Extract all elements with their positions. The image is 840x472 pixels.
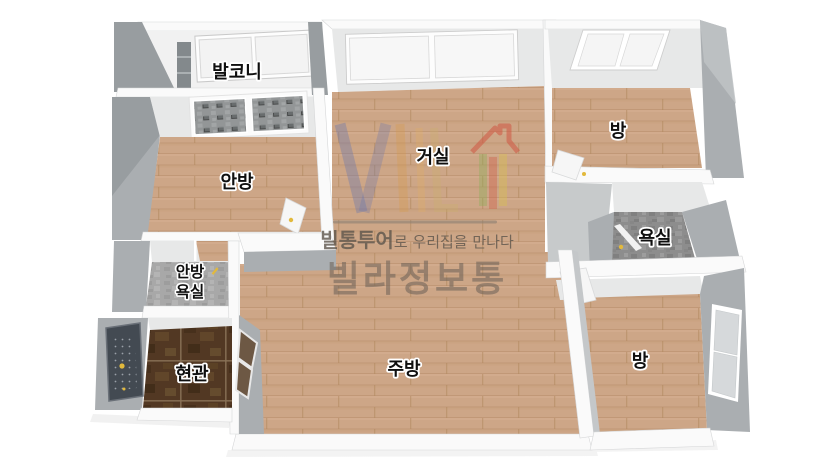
living-window — [345, 30, 518, 84]
balcony-back-wall-top — [138, 22, 322, 31]
label-room-top: 방 — [610, 121, 627, 142]
entrance-door-pattern — [112, 333, 137, 391]
master-bath-bottom-wall-top — [142, 306, 232, 318]
room-master-bedroom — [112, 91, 322, 241]
floorplan-canvas: 빌통투어로 우리집을 만나다 빌라정보통 발코니 안방 거실 방 욕실 안방 욕… — [0, 0, 840, 472]
logo-i-stroke — [400, 124, 404, 212]
room-bottom-bottom-wall-top — [590, 428, 714, 450]
label-entrance: 현관 — [175, 364, 209, 385]
logo-house-stripe-red — [489, 157, 497, 209]
master-bedroom-window — [189, 91, 309, 139]
label-room-bottom: 방 — [632, 351, 649, 372]
entrance-door — [106, 323, 143, 401]
master-bedroom-window-pane — [193, 98, 247, 135]
master-bedroom-door-handle — [289, 218, 293, 222]
living-window-pane — [349, 36, 429, 80]
room-top-door-handle — [582, 172, 586, 176]
floorplan-image: 빌통투어로 우리집을 만나다 빌라정보통 발코니 안방 거실 방 욕실 안방 욕… — [0, 0, 840, 472]
label-master-bath-2: 욕실 — [176, 283, 205, 301]
hall-wall-block-face — [244, 250, 336, 272]
room-bottom-window-pane — [714, 310, 739, 355]
master-bath-door-jamb — [194, 240, 197, 261]
bathroom-door-handle — [619, 245, 623, 249]
master-bath-left-wall — [112, 241, 150, 312]
logo-i-stroke — [419, 128, 422, 212]
label-master-bedroom: 안방 — [220, 172, 254, 193]
kitchen-bottom-wall-top — [232, 434, 592, 450]
balcony-side-window-bar — [177, 72, 191, 74]
watermark-brand: 빌라정보통 — [327, 259, 508, 300]
balcony-side-window — [177, 42, 191, 90]
label-kitchen: 주방 — [387, 359, 421, 380]
room-bottom-window-pane — [712, 352, 737, 398]
balcony-side-window-bar — [177, 56, 191, 58]
logo-house-stripe-yellow — [499, 154, 507, 206]
room-bottom-window — [708, 304, 742, 402]
living-window-pane — [434, 34, 514, 78]
entrance-bottom-wall-top — [137, 408, 232, 422]
entrance-door-handle — [119, 363, 124, 368]
label-living-room: 거실 — [416, 147, 449, 168]
entrance-door-handle-low — [123, 388, 126, 391]
watermark-divider — [333, 221, 497, 224]
label-bathroom: 욕실 — [638, 228, 671, 249]
living-back-wall-top — [322, 20, 545, 29]
master-bedroom-window-pane — [251, 95, 305, 132]
master-bath-door-opening — [196, 241, 230, 261]
logo-house-stripe-green — [479, 154, 487, 206]
room-balcony — [114, 22, 322, 97]
label-balcony: 발코니 — [212, 62, 262, 83]
label-master-bath-1: 안방 — [176, 263, 205, 281]
room-top-right — [545, 20, 744, 184]
balcony-window-pane — [255, 34, 309, 75]
room-top-back-wall-top — [545, 20, 706, 29]
